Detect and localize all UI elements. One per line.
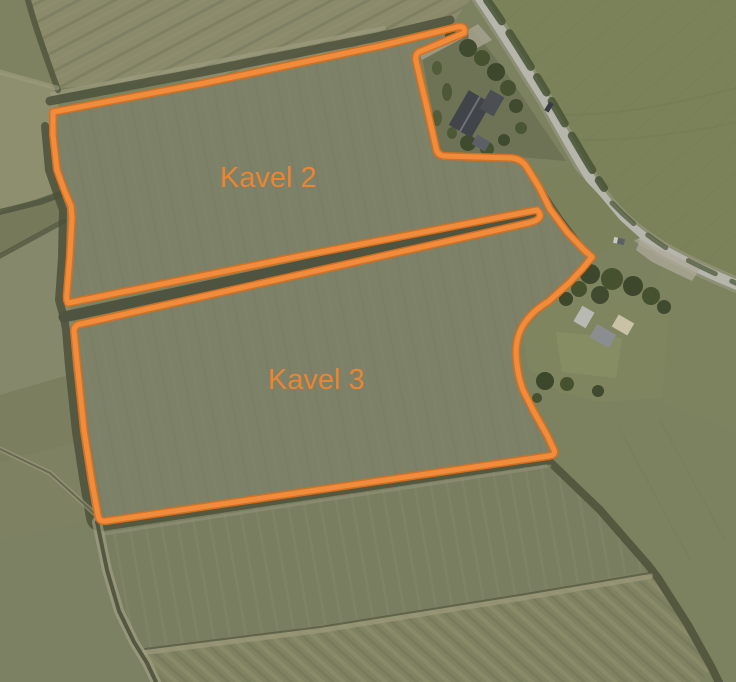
aerial-map-image: Kavel 2 Kavel 3 bbox=[0, 0, 736, 682]
label-kavel-2: Kavel 2 bbox=[220, 162, 317, 194]
aerial-parcel-map: Kavel 2 Kavel 3 bbox=[0, 0, 736, 682]
label-kavel-3: Kavel 3 bbox=[268, 364, 365, 396]
